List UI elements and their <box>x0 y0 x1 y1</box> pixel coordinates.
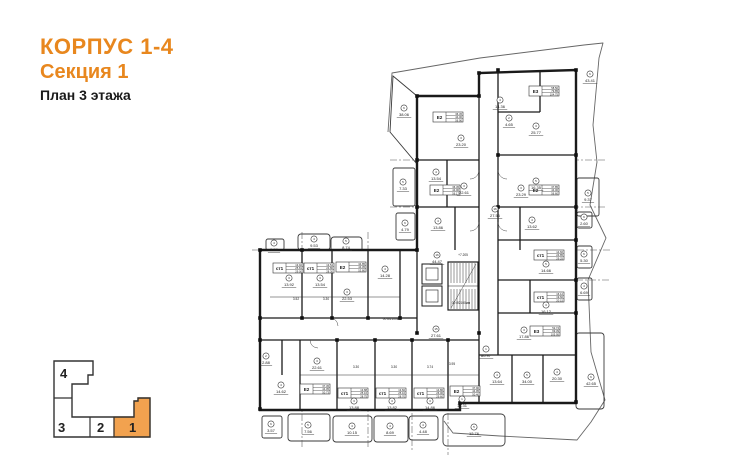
apartment-table: Е237.4544.0550.73 <box>300 384 330 395</box>
keyplan-section-2[interactable]: 2 <box>97 420 104 435</box>
note-label: 3.95 <box>449 362 455 366</box>
terrace-outline <box>390 76 417 164</box>
svg-text:14.62: 14.62 <box>276 389 287 394</box>
svg-text:29.25: 29.25 <box>556 257 563 261</box>
svg-text:Е2: Е2 <box>434 188 440 193</box>
terrace-label: 49.53 <box>308 236 320 249</box>
svg-text:13.62: 13.62 <box>527 224 538 229</box>
svg-text:13.88: 13.88 <box>349 405 360 410</box>
svg-text:29.60: 29.60 <box>436 395 443 399</box>
svg-text:16: 16 <box>435 253 439 257</box>
apartment-table: ст114.8626.0029.60 <box>414 388 444 399</box>
apartment-table: ст113.8825.1628.75 <box>338 388 368 399</box>
apartment-table: Е236.4544.0056.17 <box>430 185 460 196</box>
svg-text:14.66: 14.66 <box>541 268 552 273</box>
terrace-label: 64.79 <box>399 220 411 233</box>
apartment-table: Е352.7469.39105.95 <box>530 326 560 337</box>
svg-text:22.61: 22.61 <box>312 365 323 370</box>
terrace-label: 410.15 <box>345 423 360 436</box>
svg-text:15: 15 <box>434 327 438 331</box>
svg-text:25.77: 25.77 <box>531 130 542 135</box>
svg-text:44.47: 44.47 <box>432 259 443 264</box>
svg-text:16.35: 16.35 <box>531 185 542 190</box>
svg-text:105.95: 105.95 <box>551 333 560 337</box>
svg-text:16: 16 <box>493 207 497 211</box>
svg-text:13.54: 13.54 <box>315 282 326 287</box>
svg-text:Е2: Е2 <box>437 115 443 120</box>
svg-text:Е2: Е2 <box>340 265 346 270</box>
building-title: КОРПУС 1-4 <box>40 34 174 59</box>
svg-text:42.65: 42.65 <box>586 381 597 386</box>
svg-text:4.79: 4.79 <box>401 227 410 232</box>
svg-text:3.28: 3.28 <box>270 247 279 252</box>
svg-text:10.15: 10.15 <box>347 430 358 435</box>
note-label: 3.52 <box>293 297 299 301</box>
svg-text:104.75: 104.75 <box>550 93 559 97</box>
svg-text:Е3: Е3 <box>534 329 540 334</box>
apartment-table: ст113.9225.8129.00 <box>273 263 303 274</box>
svg-text:13.92: 13.92 <box>284 282 295 287</box>
note-label: +7.205 <box>458 253 468 257</box>
terrace-label: 57.33 <box>397 179 409 192</box>
svg-text:4.48: 4.48 <box>419 429 428 434</box>
terrace-label: 57.56 <box>302 422 314 435</box>
svg-text:ст1: ст1 <box>417 391 425 396</box>
svg-text:80.97: 80.97 <box>481 353 492 358</box>
svg-text:14.36: 14.36 <box>495 104 506 109</box>
svg-text:38.06: 38.06 <box>399 112 410 117</box>
svg-text:23.29: 23.29 <box>516 192 527 197</box>
apartment-table: ст113.8225.1028.70 <box>376 388 406 399</box>
note-label: 3.74 <box>427 365 433 369</box>
svg-text:28.75: 28.75 <box>360 395 367 399</box>
svg-text:12.76: 12.76 <box>469 431 480 436</box>
keyplan: 4 3 2 1 <box>54 361 150 437</box>
svg-text:43.41: 43.41 <box>585 78 596 83</box>
svg-text:ст1: ст1 <box>379 391 387 396</box>
svg-text:13.82: 13.82 <box>387 405 398 410</box>
svg-text:17.86: 17.86 <box>519 334 530 339</box>
keyplan-section-1[interactable]: 1 <box>129 420 136 435</box>
svg-text:27.61: 27.61 <box>431 333 442 338</box>
svg-text:56.90: 56.90 <box>455 119 462 123</box>
floor-plan-page: КОРПУС 1-4 Секция 1 План 3 этажа <box>0 0 740 472</box>
svg-text:Е3: Е3 <box>533 89 539 94</box>
terrace-label: 58.74 <box>340 238 352 251</box>
apartment-table: ст113.5424.8028.30 <box>304 263 334 274</box>
floor-title: План 3 этажа <box>40 87 174 103</box>
terrace-label: 638.06 <box>397 105 412 118</box>
svg-text:ст1: ст1 <box>307 266 315 271</box>
terrace-label: 643.41 <box>583 71 598 84</box>
svg-text:14.28: 14.28 <box>380 273 391 278</box>
svg-text:14.31: 14.31 <box>457 403 468 408</box>
svg-text:22.61: 22.61 <box>459 190 470 195</box>
svg-text:20.15: 20.15 <box>556 299 563 303</box>
svg-text:23.20: 23.20 <box>456 142 467 147</box>
svg-text:27.56: 27.56 <box>490 213 501 218</box>
svg-text:8.69: 8.69 <box>386 430 395 435</box>
terrace-label: 642.65 <box>584 374 599 387</box>
svg-text:ст1: ст1 <box>276 266 284 271</box>
terrace-label: 65.30 <box>578 251 590 264</box>
terrace-label: 63.57 <box>265 421 277 434</box>
title-block: КОРПУС 1-4 Секция 1 План 3 этажа <box>40 34 174 103</box>
apartment-table: Е236.4544.0056.90 <box>433 112 463 123</box>
svg-text:50.40: 50.40 <box>472 393 479 397</box>
svg-text:7.33: 7.33 <box>399 186 408 191</box>
svg-text:16.12: 16.12 <box>541 309 552 314</box>
svg-text:14.86: 14.86 <box>425 405 436 410</box>
svg-text:53.80: 53.80 <box>358 269 365 273</box>
note-label: 3.30 <box>353 365 359 369</box>
apartment-table: ст114.6624.8529.25 <box>534 250 564 261</box>
apartment-table: Е237.9044.9550.40 <box>450 386 480 397</box>
svg-text:3.57: 3.57 <box>267 428 276 433</box>
apartment-table: Е358.5079.85104.75 <box>529 86 559 97</box>
keyplan-section-4[interactable]: 4 <box>60 366 68 381</box>
section-title: Секция 1 <box>40 61 174 84</box>
svg-text:9.53: 9.53 <box>310 243 319 248</box>
terrace-label: 48.69 <box>384 423 396 436</box>
svg-text:ст1: ст1 <box>341 391 349 396</box>
svg-text:4.65: 4.65 <box>505 122 514 127</box>
svg-text:28.30: 28.30 <box>326 270 333 274</box>
svg-text:22.53: 22.53 <box>342 296 353 301</box>
svg-text:2.60: 2.60 <box>580 221 589 226</box>
note-label: 00 Ø2100мм <box>452 301 470 305</box>
svg-text:13.86: 13.86 <box>433 225 444 230</box>
svg-text:34.00: 34.00 <box>522 379 533 384</box>
svg-text:50.73: 50.73 <box>322 391 329 395</box>
svg-text:20.30: 20.30 <box>552 376 563 381</box>
note-label: 00 Ø2100мм <box>383 317 401 321</box>
svg-text:9.37: 9.37 <box>584 197 593 202</box>
svg-text:8.74: 8.74 <box>342 245 351 250</box>
svg-text:5.30: 5.30 <box>580 258 589 263</box>
apartment-table: ст116.1219.6020.15 <box>534 292 564 303</box>
keyplan-section-3[interactable]: 3 <box>58 420 65 435</box>
svg-text:Е2: Е2 <box>454 389 460 394</box>
note-label: 3.30 <box>391 365 397 369</box>
note-label: 3.30 <box>323 297 329 301</box>
svg-text:ст1: ст1 <box>537 253 545 258</box>
svg-text:13.64: 13.64 <box>492 379 503 384</box>
svg-text:13.54: 13.54 <box>431 176 442 181</box>
svg-text:56.60: 56.60 <box>551 192 558 196</box>
svg-text:7.56: 7.56 <box>304 429 313 434</box>
svg-text:28.70: 28.70 <box>398 395 405 399</box>
svg-text:ст1: ст1 <box>537 295 545 300</box>
terrace-label: 44.48 <box>417 422 429 435</box>
svg-text:2.88: 2.88 <box>262 360 271 365</box>
svg-text:29.00: 29.00 <box>295 270 302 274</box>
svg-text:6.69: 6.69 <box>580 290 589 295</box>
svg-text:Е2: Е2 <box>304 387 310 392</box>
apartment-table: Е234.8544.0553.80 <box>336 262 366 273</box>
terrace-outline <box>576 333 604 409</box>
